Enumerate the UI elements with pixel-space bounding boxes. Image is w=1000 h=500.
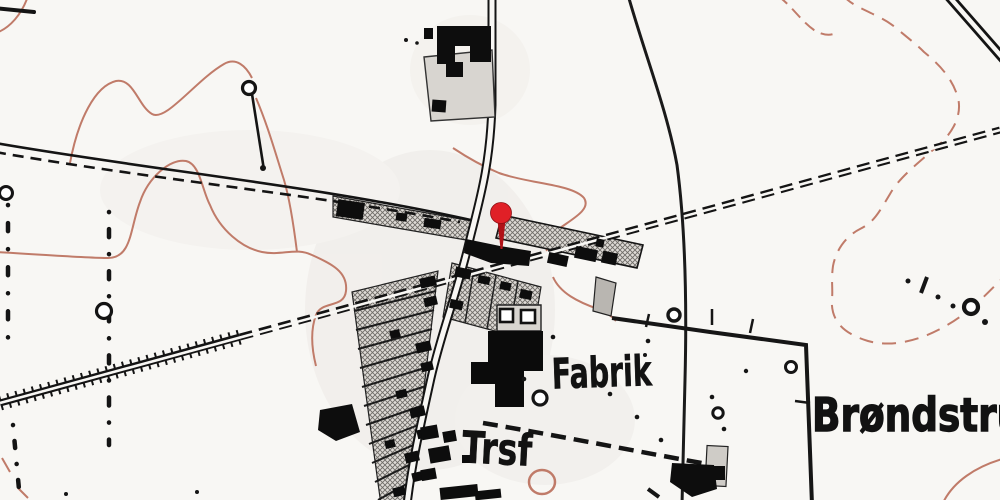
boundary-stone-circle <box>97 304 112 319</box>
label-fabrik: Fabrik <box>551 346 653 398</box>
well-circle <box>533 391 547 405</box>
pin-head <box>491 203 512 224</box>
fence-circle <box>668 309 680 321</box>
fence-circle <box>786 362 797 373</box>
map-svg: Fabrik Trsf Brøndstrup <box>0 0 1000 500</box>
map-canvas: Fabrik Trsf Brøndstrup <box>0 0 1000 500</box>
label-brondstrup: Brøndstrup <box>812 388 1000 442</box>
well-circle <box>964 300 978 314</box>
boundary-stone-circle <box>0 187 13 200</box>
well-circle <box>713 408 723 418</box>
label-trsf: Trsf <box>461 422 534 477</box>
